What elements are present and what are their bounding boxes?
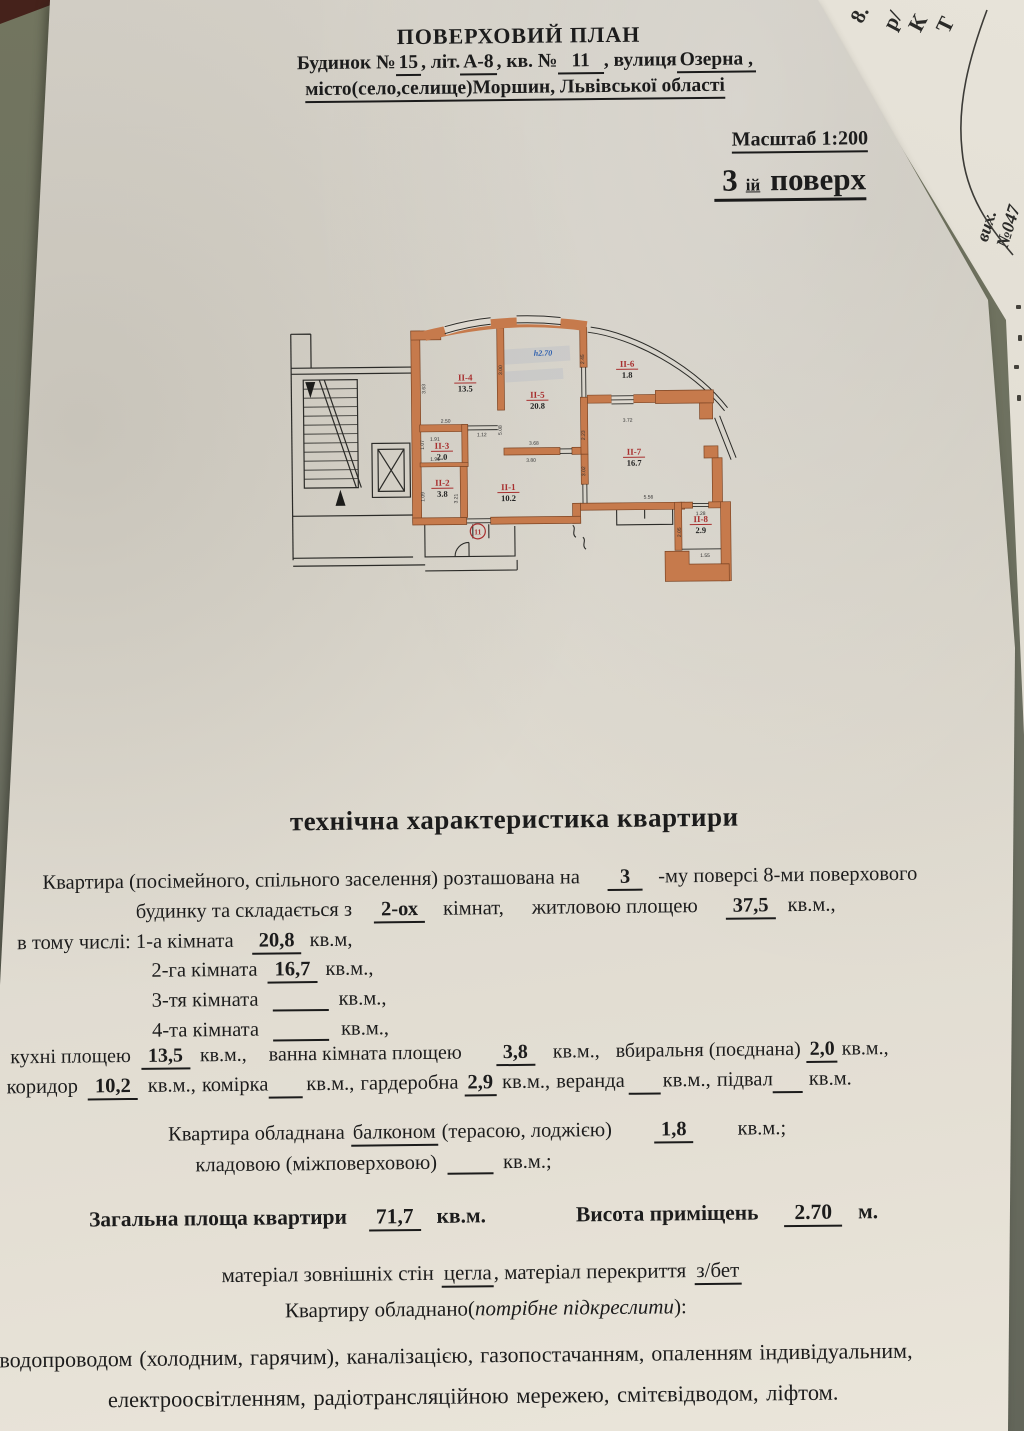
dim: 3.80 — [526, 458, 536, 464]
room-label-II-5: ІІ-5 20.8 — [526, 390, 548, 411]
text: 2-га кімната — [151, 959, 257, 983]
tech-line-5: 3-тя кімнатакв.м., — [152, 987, 387, 1012]
dim: 1.28 — [696, 511, 706, 517]
dim: 5.56 — [644, 495, 654, 501]
balcony-area-value: 1,8 — [654, 1118, 694, 1143]
room-area: 16.7 — [627, 458, 643, 468]
common-area-walls — [291, 333, 425, 566]
text: кухні площею — [10, 1045, 131, 1069]
text: м. — [858, 1199, 878, 1224]
tech-line-8: коридор10,2кв.м., коміркакв.м., гардероб… — [6, 1067, 851, 1101]
corridor-area-value: 10,2 — [88, 1075, 138, 1101]
room-id: ІІ-1 — [501, 482, 516, 492]
tech-line-1: Квартира (посімейного, спільного заселен… — [42, 863, 917, 897]
building-number: 15 — [396, 52, 422, 76]
text: кв.м., — [842, 1037, 889, 1060]
room-label-II-8: ІІ-8 2.9 — [690, 514, 712, 535]
tech-line-10: кладовою (міжповерховою)кв.м.; — [195, 1151, 551, 1178]
elevator-shaft — [372, 443, 411, 497]
dim: 3.02 — [581, 466, 587, 476]
text: кв.м., — [338, 987, 386, 1011]
wardrobe-area-value: 2,9 — [464, 1071, 496, 1096]
kitchen-area-value: 13,5 — [141, 1044, 190, 1070]
room-area: 1.8 — [622, 370, 633, 380]
balcony-word: балконом — [351, 1121, 438, 1147]
floor-number: 3 — [714, 163, 746, 199]
label-city: місто — [305, 79, 352, 101]
section-title: технічна характеристика квартири — [290, 802, 739, 838]
text: -му поверсі 8-ми поверхового — [658, 863, 917, 889]
wc-area-value: 2,0 — [807, 1038, 838, 1063]
room-id: ІІ-7 — [627, 447, 642, 457]
dim: 3.72 — [623, 418, 633, 424]
scale-label: Масштаб 1:200 — [732, 127, 869, 153]
dim: 3.00 — [498, 365, 504, 375]
ceiling-height-value: 2.70 — [784, 1200, 842, 1228]
street-name: Озерна , — [677, 48, 756, 73]
tech-line-7: кухні площею13,5кв.м.,ванна кімната площ… — [10, 1037, 888, 1071]
text: кв.м., — [325, 957, 373, 981]
dim: 3.68 — [529, 441, 539, 447]
text: кв.м.; — [503, 1151, 552, 1175]
text: кладовою (міжповерховою) — [195, 1152, 437, 1178]
document-content: ПОВЕРХОВИЙ ПЛАН Будинок № 15, літ.А-8, к… — [0, 0, 1024, 1431]
text: кімнат, — [443, 897, 504, 921]
room-label-II-7: ІІ-7 16.7 — [623, 447, 645, 468]
rooms-count-value: 2-ох — [374, 898, 425, 924]
tech-line-4: 2-га кімната16,7кв.м., — [151, 957, 373, 984]
unit-number: 11 — [474, 527, 481, 536]
text: 3-тя кімната — [152, 989, 259, 1013]
scale-text: Масштаб 1:200 — [732, 127, 869, 153]
text: ванна кімната площею — [269, 1042, 462, 1067]
room-area: 13.5 — [458, 383, 473, 393]
floor-ordinal: ій — [746, 175, 761, 195]
tech-line-2: будинку та складається з2-охкімнат,житло… — [136, 894, 836, 926]
room-area: 3.8 — [437, 489, 448, 499]
blank-field — [272, 995, 328, 1012]
floor-plan: ІІ-4 13.5 ІІ-5 20.8 ІІ-6 1.8 ІІ-7 — [274, 306, 742, 603]
apartment-walls — [411, 326, 732, 584]
text: кв.м.; — [737, 1117, 786, 1141]
floor-text: 3ійповерх — [714, 161, 866, 202]
label-village: (село,селище) — [352, 77, 473, 100]
text: житловою площею — [532, 895, 698, 920]
tech-line-9: Квартира обладнанабалконом(терасою, лодж… — [168, 1117, 786, 1148]
room2-area-value: 16,7 — [267, 958, 317, 984]
text: , матеріал перекриття — [494, 1258, 687, 1285]
label-street: , вулиця — [604, 49, 677, 72]
room-label-II-2: ІІ-2 3.8 — [431, 478, 453, 499]
wall-material-value: цегла — [442, 1260, 494, 1288]
room-id: ІІ-5 — [530, 390, 545, 400]
room-id: ІІ-2 — [435, 478, 450, 488]
blank-field — [273, 1025, 329, 1042]
blank-field — [773, 1077, 803, 1093]
total-area-value: 71,7 — [369, 1204, 421, 1232]
blank-field — [447, 1158, 493, 1174]
label-apt: , кв. № — [496, 50, 557, 73]
text: кв.м, — [309, 929, 352, 952]
page-title: ПОВЕРХОВИЙ ПЛАН — [397, 22, 641, 51]
dim: 2.05 — [677, 527, 683, 537]
city-line: місто (село,селище) Моршин, Львівської о… — [305, 75, 725, 103]
text: кв.м., комірка — [148, 1074, 269, 1098]
dim: 1.55 — [700, 553, 710, 559]
text: кв.м., — [553, 1040, 600, 1063]
dim: 1.09 — [420, 492, 426, 502]
apt-number: 11 — [557, 50, 604, 74]
address-line-1: Будинок № 15, літ.А-8, кв. № 11, вулиця … — [297, 48, 756, 77]
city-name: Моршин, Львівської області — [472, 75, 725, 100]
text: водопроводом (холодним, гарячим), каналі… — [0, 1338, 913, 1374]
text: електроосвітленням, радіотрансляційною м… — [108, 1380, 839, 1414]
text: кв.м., підвал — [663, 1068, 773, 1092]
curved-facade-wall — [425, 315, 587, 336]
dim: 2.23 — [581, 430, 587, 440]
section-title-text: технічна характеристика квартири — [290, 802, 739, 838]
ceiling-height-note: h2.70 — [534, 349, 553, 358]
dim: 1.12 — [477, 432, 487, 438]
dim: 1.07 — [420, 440, 426, 450]
text: 4-та кімната — [152, 1019, 259, 1043]
dim: 5.08 — [498, 425, 504, 435]
label-building: Будинок № — [297, 52, 396, 75]
tech-line-15: електроосвітленням, радіотрансляційною м… — [108, 1380, 839, 1414]
tech-line-6: 4-та кімнатакв.м., — [152, 1017, 389, 1042]
text: Загальна площа квартири — [89, 1205, 347, 1233]
text: в тому числі: 1-а кімната — [17, 930, 234, 955]
dim: 1.91 — [430, 457, 440, 463]
dim: 3.63 — [421, 384, 427, 394]
bathroom-area-value: 3,8 — [496, 1041, 535, 1066]
text: кв.м., — [787, 894, 835, 918]
text: (терасою, лоджією) — [442, 1119, 613, 1144]
photo-of-floor-plan-document: 8. р/ К Т вих. №047 ПОВЕРХОВИЙ ПЛАН Буди… — [0, 0, 1024, 1431]
text: Квартира (посімейного, спільного заселен… — [42, 866, 580, 895]
underline-note: потрібне підкреслити — [475, 1294, 674, 1321]
text: коридор — [6, 1076, 78, 1100]
page-title-text: ПОВЕРХОВИЙ ПЛАН — [397, 22, 641, 51]
address-line-2: місто (село,селище) Моршин, Львівської о… — [305, 75, 725, 103]
text: вбиральня (поєднана) — [616, 1038, 801, 1063]
room-label-II-4: ІІ-4 13.5 — [454, 372, 476, 393]
slab-material-value: з/бет — [694, 1258, 741, 1285]
room-area: 20.8 — [530, 401, 545, 411]
floor-word: поверх — [770, 161, 866, 198]
text: кв.м., гардеробна — [306, 1072, 458, 1097]
blank-field — [629, 1078, 661, 1094]
tech-line-11: Загальна площа квартири71,7кв.м.Висота п… — [89, 1199, 878, 1234]
text: кв.м., веранда — [502, 1070, 625, 1094]
dim: 2.45 — [580, 354, 586, 364]
room-label-II-6: ІІ-6 1.8 — [616, 359, 638, 380]
room-label-II-1: ІІ-1 10.2 — [497, 482, 519, 503]
tech-line-13: Квартиру обладнано(потрібне підкреслити)… — [285, 1294, 687, 1323]
text: ): — [674, 1294, 687, 1319]
lit-value: А-8 — [460, 51, 497, 75]
label-lit: , літ. — [421, 52, 460, 74]
dim: 2.50 — [441, 419, 451, 425]
floor-value: 3 — [608, 866, 643, 891]
text: кв.м., — [200, 1044, 247, 1067]
room-id: ІІ-6 — [620, 359, 635, 369]
text: будинку та складається з — [136, 899, 352, 924]
text: Квартиру обладнано( — [285, 1296, 475, 1323]
text: кв.м., — [341, 1017, 389, 1041]
tech-line-12: матеріал зовнішніх стінцегла, матеріал п… — [221, 1258, 741, 1290]
tech-line-3: в тому числі: 1-а кімната20,8кв.м, — [17, 929, 353, 958]
room-id: ІІ-4 — [458, 372, 473, 382]
room-area: 2.9 — [695, 525, 706, 535]
dim: 3.21 — [453, 493, 459, 503]
blank-field — [268, 1082, 302, 1098]
floor-label: 3ійповерх — [714, 161, 866, 202]
room1-area-value: 20,8 — [252, 929, 302, 955]
text: кв.м. — [436, 1203, 486, 1229]
tech-line-14: водопроводом (холодним, гарячим), каналі… — [0, 1338, 913, 1374]
text: Квартира обладнана — [168, 1122, 345, 1147]
text: Висота приміщень — [576, 1200, 759, 1227]
text: матеріал зовнішніх стін — [221, 1261, 433, 1288]
text: кв.м. — [809, 1067, 852, 1090]
dim: 1.91 — [430, 437, 440, 443]
living-area-value: 37,5 — [726, 894, 776, 920]
room-area: 10.2 — [501, 493, 516, 503]
